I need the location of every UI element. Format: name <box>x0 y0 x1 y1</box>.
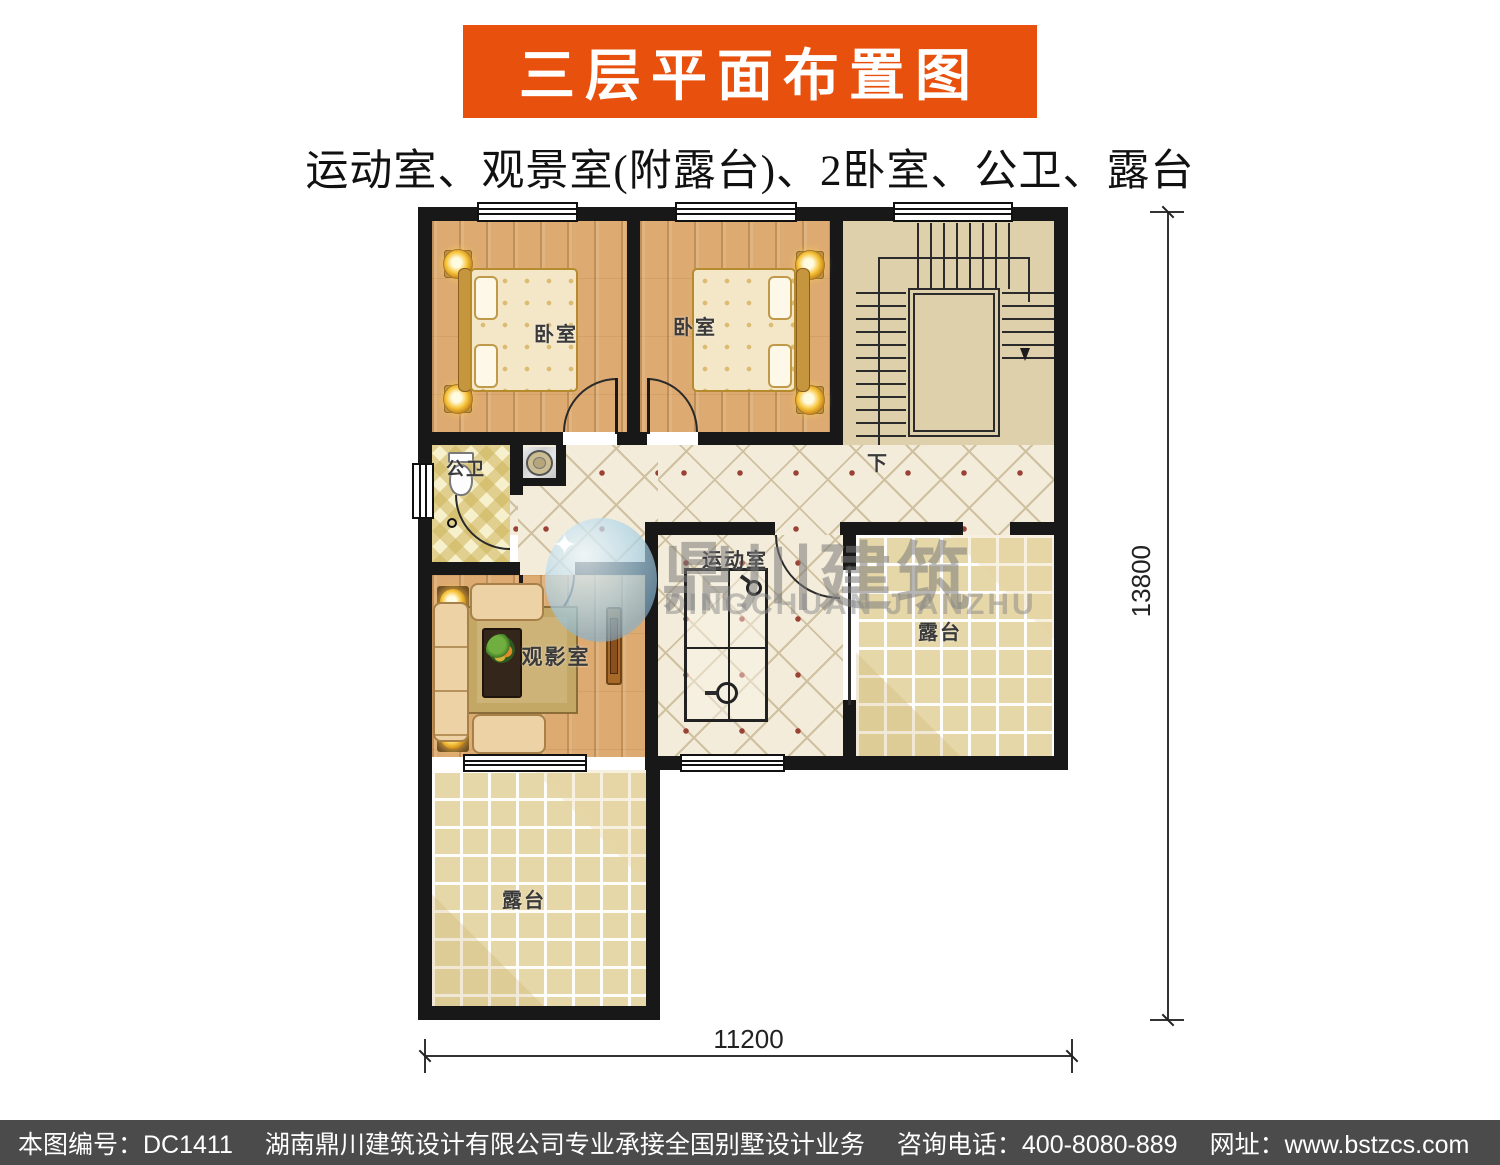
wall-bedroom2-stairs <box>830 207 843 445</box>
wall-media-top-a <box>418 562 520 575</box>
sink-basin-inner <box>533 457 546 469</box>
window-stairwell <box>893 202 1013 222</box>
footer-bar: 本图编号：DC1411 湖南鼎川建筑设计有限公司专业承接全国别墅设计业务 咨询电… <box>0 1120 1500 1165</box>
website-url: 网址：www.bstzcs.com <box>1210 1125 1470 1161</box>
stairwell-inner-line <box>913 293 995 432</box>
sofa-single-bottom <box>472 714 546 754</box>
window-bedroom-1 <box>477 202 578 222</box>
phone-number: 咨询电话：400-8080-889 <box>897 1125 1178 1161</box>
wall-terrace-bottom <box>418 1006 660 1020</box>
dimension-line-right <box>1167 212 1169 1020</box>
stairwell-opening <box>908 288 1000 437</box>
title-banner: 三层平面布置图 <box>463 25 1037 118</box>
stairs-railing-right <box>1028 257 1030 302</box>
company-slogan: 湖南鼎川建筑设计有限公司专业承接全国别墅设计业务 <box>265 1125 865 1161</box>
wall-sink-bottom <box>510 478 566 486</box>
room-label-bedroom-2: 卧室 <box>645 311 745 340</box>
sink-basin <box>526 450 553 476</box>
wall-bathroom-right <box>510 445 523 495</box>
wall-gym-terrace-b <box>843 700 856 756</box>
room-label-bathroom: 公卫 <box>435 455 497 481</box>
door-leaf-bedroom-1 <box>615 378 618 434</box>
stairs-upper-steps <box>917 223 1013 289</box>
pillow <box>768 344 792 388</box>
window-bedroom-2 <box>675 202 797 222</box>
window-bathroom <box>412 463 434 519</box>
wall-bedroom-divider <box>627 207 640 432</box>
sofa-single-top <box>470 583 544 621</box>
stairs-railing-top <box>878 257 1030 259</box>
page-title: 三层平面布置图 <box>519 31 981 112</box>
pillow <box>768 276 792 320</box>
game-table-midline <box>687 647 765 649</box>
room-label-bedroom-1: 卧室 <box>506 318 606 347</box>
sparkle-icon: ✦ <box>552 528 577 563</box>
sofa-three-seat <box>433 602 469 742</box>
wall-bedrooms-bottom-a <box>418 432 563 445</box>
table-marker <box>716 682 738 704</box>
wall-bedrooms-bottom-c <box>698 432 843 445</box>
dimension-value-bottom: 11200 <box>425 1024 1072 1055</box>
room-label-media-room: 观影室 <box>496 641 616 671</box>
page: 三层平面布置图 运动室、观景室(附露台)、2卧室、公卫、露台 <box>0 0 1500 1165</box>
wall-left <box>418 207 432 1020</box>
bed-headboard <box>796 268 810 392</box>
stairs-down-arrow-icon <box>1020 348 1030 361</box>
pillow <box>474 344 498 388</box>
room-label-terrace-bottom: 露台 <box>474 884 574 913</box>
drawing-number: 本图编号：DC1411 <box>18 1125 233 1161</box>
table-marker-stub <box>705 691 718 695</box>
door-stop-bathroom <box>447 518 457 528</box>
window-media-room <box>463 754 587 772</box>
wall-bedrooms-bottom-b <box>617 432 647 445</box>
wall-terrace-right <box>646 756 660 1020</box>
wall-right <box>1054 207 1068 770</box>
stairs-railing-left <box>878 257 880 445</box>
dimension-value-right: 13800 <box>1126 545 1157 617</box>
wall-terrace-top <box>1010 522 1054 535</box>
window-gym <box>680 754 785 772</box>
door-leaf-bedroom-2 <box>647 378 650 434</box>
stairs-down-label: 下 <box>858 447 898 476</box>
subtitle: 运动室、观景室(附露台)、2卧室、公卫、露台 <box>0 136 1500 198</box>
watermark-en: DINGCHUAN JIANZHU <box>664 588 1037 622</box>
stairs-left-steps <box>856 292 906 443</box>
pillow <box>474 276 498 320</box>
dimension-line-bottom <box>425 1055 1072 1057</box>
